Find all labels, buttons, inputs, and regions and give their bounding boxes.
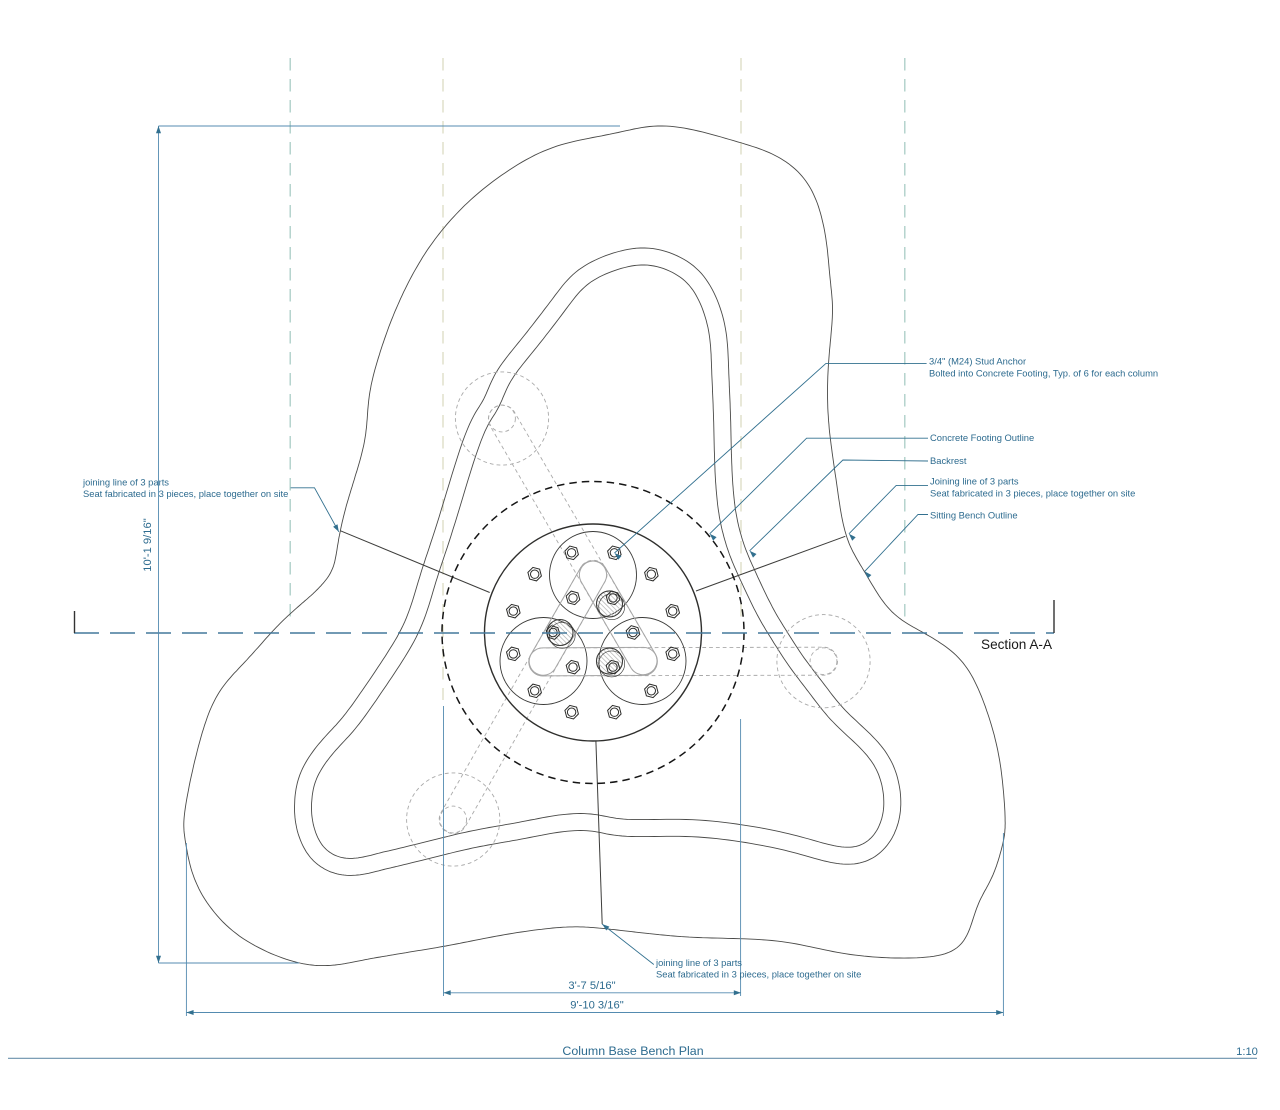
svg-text:Sitting Bench Outline: Sitting Bench Outline [930,510,1018,521]
svg-text:1:10: 1:10 [1236,1046,1258,1058]
svg-text:Seat fabricated in 3 pieces, p: Seat fabricated in 3 pieces, place toget… [930,487,1135,498]
svg-text:Concrete Footing Outline: Concrete Footing Outline [930,432,1034,443]
svg-text:joining line of 3 parts: joining line of 3 parts [655,957,742,968]
svg-text:3/4" (M24) Stud Anchor: 3/4" (M24) Stud Anchor [929,356,1026,367]
svg-text:10'-1 9/16": 10'-1 9/16" [142,518,154,571]
svg-text:Backrest: Backrest [930,455,967,466]
svg-text:Seat fabricated in 3 pieces, p: Seat fabricated in 3 pieces, place toget… [656,969,861,980]
svg-text:Column Base Bench Plan: Column Base Bench Plan [562,1044,703,1058]
svg-text:Seat fabricated in 3 pieces, p: Seat fabricated in 3 pieces, place toget… [83,488,288,499]
svg-text:3'-7 5/16": 3'-7 5/16" [568,980,615,992]
svg-text:Bolted into Concrete Footing,: Bolted into Concrete Footing, Typ. of 6 … [929,368,1158,379]
svg-text:Joining line of 3 parts: Joining line of 3 parts [930,475,1019,486]
svg-text:Section A-A: Section A-A [981,637,1053,652]
svg-text:joining line of 3 parts: joining line of 3 parts [82,477,169,488]
svg-text:9'-10 3/16": 9'-10 3/16" [570,1000,623,1012]
